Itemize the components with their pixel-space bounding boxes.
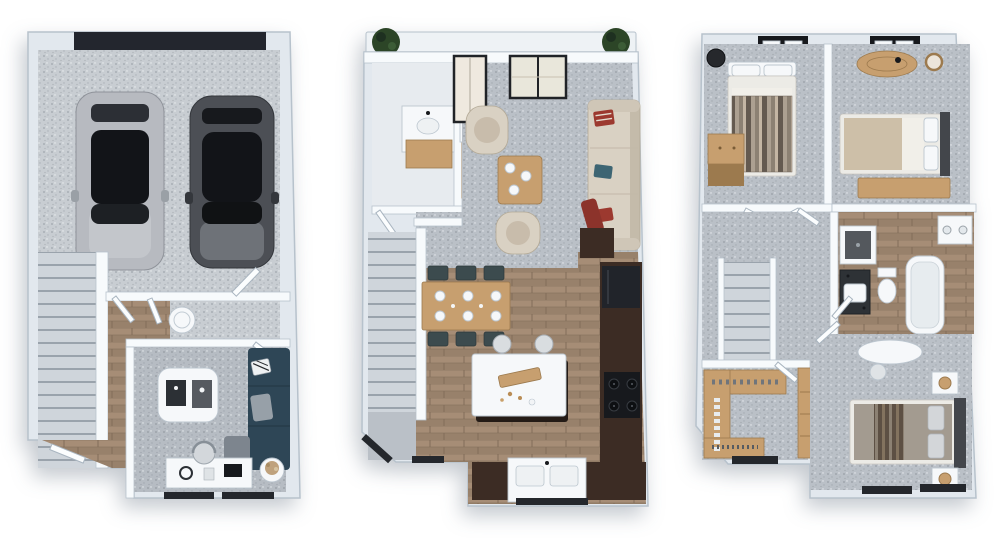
floorplan-upper-level xyxy=(682,16,988,516)
primary-bed xyxy=(850,398,966,468)
floor-plan-render xyxy=(0,0,1000,544)
flex-window-left xyxy=(164,492,214,499)
lounge-chair xyxy=(707,49,725,67)
kitchen-window xyxy=(516,498,588,505)
powder-vanity xyxy=(402,106,454,168)
powder-room xyxy=(372,63,462,237)
flex-room xyxy=(126,339,290,499)
walk-in-closet xyxy=(702,360,810,464)
cream-sofa xyxy=(580,100,640,250)
stair-half-wall xyxy=(414,218,462,226)
vanity-stool xyxy=(870,364,886,380)
stair-wall xyxy=(96,252,108,468)
desk-chair xyxy=(193,442,215,464)
laundry xyxy=(938,216,972,244)
flex-window-right xyxy=(222,492,274,499)
bed-bench xyxy=(858,178,950,198)
water-heater xyxy=(169,307,195,333)
stair-landing xyxy=(368,412,416,460)
primary-window-left xyxy=(862,486,912,494)
wall-mirror xyxy=(926,54,942,70)
balcony-window xyxy=(510,56,566,98)
dresser xyxy=(708,134,744,186)
console-table xyxy=(857,51,917,77)
toilet xyxy=(878,268,896,303)
primary-window-right xyxy=(920,484,966,492)
staircase xyxy=(38,252,96,468)
floorplan-main-level xyxy=(350,6,660,536)
primary-bedroom xyxy=(810,321,972,494)
utility-corridor xyxy=(106,292,290,339)
media-console xyxy=(580,228,614,258)
dining-set xyxy=(422,266,510,346)
coffee-table xyxy=(158,368,218,422)
bathroom xyxy=(830,212,974,338)
staircase xyxy=(724,262,770,366)
garage-door xyxy=(74,32,266,50)
bottom-left-window xyxy=(412,456,444,463)
living-coffee-table xyxy=(498,156,542,204)
armchair-bottom xyxy=(496,212,540,254)
bathtub xyxy=(906,256,944,334)
bed-3 xyxy=(840,112,950,176)
kitchen-cabinets-bottom xyxy=(472,458,646,505)
closet-window xyxy=(732,456,778,464)
floorplan-garage-level xyxy=(18,6,310,518)
striped-pillow xyxy=(593,109,615,127)
nightstand-top xyxy=(932,372,958,394)
car-charcoal xyxy=(185,96,279,268)
range xyxy=(604,372,640,418)
kitchen-sink xyxy=(508,458,586,502)
kitchen-island xyxy=(472,354,568,422)
dining-table xyxy=(422,282,510,330)
car-silver xyxy=(71,92,169,270)
teal-pillow xyxy=(593,164,612,179)
staircase xyxy=(368,232,416,412)
armchair-top xyxy=(466,106,508,154)
kitchen-cabinets-right xyxy=(600,262,642,462)
plant-table xyxy=(260,458,284,482)
bedroom-3 xyxy=(832,44,976,212)
shower xyxy=(840,226,876,264)
